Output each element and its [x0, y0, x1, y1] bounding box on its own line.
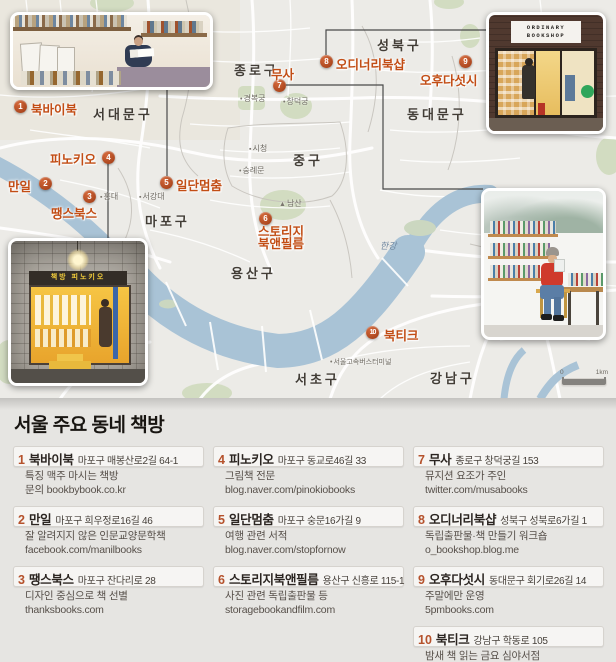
entry-address: 종로구 창덕궁길 153	[455, 452, 538, 467]
photo3-yellow-step	[49, 361, 91, 369]
photo1-shelf	[13, 27, 131, 31]
entry-description: 뮤지션 요조가 주인 twitter.com/musabooks	[425, 470, 604, 497]
legend-column-3: 7 무사 종로구 창덕궁길 153 뮤지션 요조가 주인 twitter.com…	[413, 446, 604, 662]
marker-label-manil: 만일	[8, 176, 31, 195]
legend-column-2: 4 피노키오 마포구 동교로46길 33 그림책 전문 blog.naver.c…	[213, 446, 404, 662]
entry-desc-line1: 뮤지션 요조가 주인	[425, 470, 604, 484]
entry-address: 마포구 동교로46길 33	[278, 452, 366, 467]
photo2-floor	[489, 118, 603, 131]
poi-namsan: ▲남산	[279, 198, 302, 209]
entry-number: 4	[218, 453, 225, 467]
photo4-shoe	[553, 315, 564, 321]
photo1-person-head	[134, 37, 143, 46]
entry-header: 2 만일 마포구 희우정로16길 46	[13, 506, 204, 527]
legend-entry: 1 북바이북 마포구 매봉산로2길 64-1 특징 맥주 마시는 책방 문의 b…	[13, 446, 204, 497]
entry-number: 9	[418, 573, 425, 587]
district-label-seocho: 서초구	[295, 369, 340, 388]
photo3-person	[99, 307, 112, 347]
marker-label-storage-line2: 북앤필름	[258, 238, 304, 250]
entry-name: 피노키오	[229, 449, 274, 468]
photo1-shelf-books-2	[143, 21, 203, 33]
photo4-books-row	[490, 265, 540, 278]
entry-number: 1	[18, 453, 25, 467]
poi-changdeokgung: •창덕궁	[283, 96, 309, 107]
entry-desc-line1: 주말에만 운영	[425, 590, 604, 604]
photo3-ground	[11, 369, 145, 383]
entry-desc-line2: thanksbooks.com	[25, 604, 204, 618]
entry-number: 8	[418, 513, 425, 527]
district-label-seodaemun: 서대문구	[93, 104, 153, 123]
entry-desc-line1: 잘 알려지지 않은 인문교양문학책	[25, 530, 204, 544]
legend-title: 서울 주요 동네 책방	[14, 410, 616, 437]
photo4-shelf	[488, 256, 552, 259]
entry-header: 10 북티크 강남구 학동로 105	[413, 626, 604, 647]
entry-header: 8 오디너리북샵 성북구 성북로6가길 1	[413, 506, 604, 527]
entry-name: 스토리지북앤필름	[229, 569, 319, 588]
entry-number: 5	[218, 513, 225, 527]
entry-address: 마포구 숭문16가길 9	[278, 512, 361, 527]
photo4-books-row	[490, 221, 556, 234]
scale-end: 1km	[596, 369, 608, 376]
photo3-blue-door-frame	[113, 287, 118, 359]
entry-number: 2	[18, 513, 25, 527]
legend-entry: 6 스토리지북앤필름 용산구 신흥로 115-1 사진 관련 독립출판물 등 s…	[213, 566, 404, 617]
entry-desc-line1: 여행 관련 서적	[225, 530, 404, 544]
photo2-person-head	[525, 58, 533, 66]
entry-header: 5 일단멈춤 마포구 숭문16가길 9	[213, 506, 404, 527]
photo2-green-circle-sticker	[581, 85, 594, 98]
legend-columns: 1 북바이북 마포구 매봉산로2길 64-1 특징 맥주 마시는 책방 문의 b…	[13, 446, 616, 662]
photo-pinocchio-storefront: 책방 피노키오	[8, 238, 148, 386]
infographic: 서대문구 종로구 성북구 동대문구 중구 마포구 용산구 서초구 강남구 •경복…	[0, 0, 616, 662]
entry-description: 주말에만 운영 5pmbooks.com	[425, 590, 604, 617]
marker-label-thanksbooks: 땡스북스	[51, 203, 97, 222]
entry-description: 디자인 중심으로 책 선별 thanksbooks.com	[25, 590, 204, 617]
entry-desc-line1: 독립출판물·책 만들기 워크숍	[425, 530, 604, 544]
photo2-red-object	[538, 103, 545, 115]
scale-bar: 0 1km	[560, 369, 608, 383]
entry-desc-line2: facebook.com/manilbooks	[25, 544, 204, 558]
legend-column-1: 1 북바이북 마포구 매봉산로2길 64-1 특징 맥주 마시는 책방 문의 b…	[13, 446, 204, 662]
photo4-book	[554, 259, 565, 272]
entry-name: 북바이북	[29, 449, 74, 468]
entry-name: 만일	[29, 509, 51, 528]
entry-name: 땡스북스	[29, 569, 74, 588]
marker-label-stopfornow: 일단멈춤	[176, 175, 222, 194]
entry-name: 북티크	[436, 629, 470, 648]
legend-entry: 3 땡스북스 마포구 잔다리로 28 디자인 중심으로 책 선별 thanksb…	[13, 566, 204, 617]
legend-section: 서울 주요 동네 책방 1 북바이북 마포구 매봉산로2길 64-1 특징 맥주…	[0, 398, 616, 662]
district-label-dongdaemun: 동대문구	[407, 104, 467, 123]
marker-label-ordinary-bookshop: 오디너리북샵	[336, 54, 405, 73]
entry-address: 마포구 잔다리로 28	[78, 572, 156, 587]
marker-label-bookbybook: 북바이북	[31, 99, 77, 118]
entry-desc-line2: 5pmbooks.com	[425, 604, 604, 618]
legend-entry: 9 오후다섯시 동대문구 회기로26길 14 주말에만 운영 5pmbooks.…	[413, 566, 604, 617]
scale-bar-line	[561, 378, 607, 386]
photo2-shop-sign: ORDINARY BOOKSHOP	[511, 21, 581, 43]
entry-name: 오디너리북샵	[429, 509, 496, 528]
marker-label-booktique: 북티크	[384, 325, 419, 344]
photo-musa-interior	[481, 188, 606, 340]
sign-line-2: BOOKSHOP	[511, 32, 581, 40]
marker-label-musa: 무사	[271, 64, 294, 83]
entry-desc-line2: blog.naver.com/stopfornow	[225, 544, 404, 558]
entry-description: 여행 관련 서적 blog.naver.com/stopfornow	[225, 530, 404, 557]
mountain-icon: ▲	[279, 201, 286, 208]
legend-entry: 8 오디너리북샵 성북구 성북로6가길 1 독립출판물·책 만들기 워크숍 o_…	[413, 506, 604, 557]
map-marker-4: 4	[102, 151, 115, 164]
map-marker-9: 9	[459, 55, 472, 68]
entry-address: 성북구 성북로6가길 1	[500, 512, 587, 527]
entry-header: 9 오후다섯시 동대문구 회기로26길 14	[413, 566, 604, 587]
entry-desc-line1: 사진 관련 독립출판물 등	[225, 590, 404, 604]
legend-entry: 4 피노키오 마포구 동교로46길 33 그림책 전문 blog.naver.c…	[213, 446, 404, 497]
photo4-books-row	[568, 273, 603, 286]
entry-number: 3	[18, 573, 25, 587]
entry-name: 무사	[429, 449, 451, 468]
entry-address: 마포구 희우정로16길 46	[55, 512, 152, 527]
photo3-person-head	[101, 299, 109, 307]
entry-name: 일단멈춤	[229, 509, 274, 528]
entry-description: 잘 알려지지 않은 인문교양문학책 facebook.com/manilbook…	[25, 530, 204, 557]
map-marker-3: 3	[83, 190, 96, 203]
photo1-shelf-books	[15, 15, 127, 27]
map-marker-5: 5	[160, 176, 173, 189]
poi-sungnyemun: •숭례문	[239, 165, 265, 176]
entry-description: 특징 맥주 마시는 책방 문의 bookbybook.co.kr	[25, 470, 204, 497]
photo4-books-row	[490, 243, 550, 256]
entry-address: 동대문구 회기로26길 14	[489, 572, 586, 587]
poi-gyeongbokgung: •경복궁	[240, 93, 266, 104]
photo2-display-item	[565, 75, 575, 101]
photo3-display-shelf	[35, 329, 91, 347]
photo2-person	[522, 65, 535, 99]
entry-address: 강남구 학동로 105	[474, 632, 548, 647]
entry-description: 독립출판물·책 만들기 워크숍 o_bookshop.blog.me	[425, 530, 604, 557]
poi-express-bus-terminal: •서울고속버스터미널	[330, 357, 391, 367]
photo3-display-cards	[35, 295, 91, 325]
connector-photo4-marker7	[284, 85, 483, 189]
photo4-person-leg	[544, 297, 551, 315]
photo3-light-bulb	[67, 249, 89, 271]
photo1-floor-books	[21, 71, 121, 85]
seoul-map: 서대문구 종로구 성북구 동대문구 중구 마포구 용산구 서초구 강남구 •경복…	[0, 0, 616, 399]
photo4-shelf	[488, 278, 544, 281]
marker-label-5pm: 오후다섯시	[420, 70, 478, 89]
entry-header: 1 북바이북 마포구 매봉산로2길 64-1	[13, 446, 204, 467]
entry-number: 7	[418, 453, 425, 467]
entry-desc-line2: storagebookandfilm.com	[225, 604, 404, 618]
sign-line-1: ORDINARY	[511, 24, 581, 32]
map-marker-6: 6	[259, 212, 272, 225]
entry-name: 오후다섯시	[429, 569, 485, 588]
poi-hongdae: ▪홍대	[100, 191, 118, 202]
district-label-seongbuk: 성북구	[377, 35, 422, 54]
entry-desc-line1: 밤새 책 읽는 금요 심야서점	[425, 650, 604, 662]
entry-header: 3 땡스북스 마포구 잔다리로 28	[13, 566, 204, 587]
photo3-yellow-step	[57, 354, 83, 361]
district-label-mapo: 마포구	[145, 211, 190, 230]
photo1-open-book	[130, 48, 154, 58]
scale-start: 0	[560, 369, 564, 376]
map-marker-10: 10	[366, 326, 379, 339]
entry-header: 6 스토리지북앤필름 용산구 신흥로 115-1	[213, 566, 404, 587]
photo4-shoe	[541, 314, 552, 320]
marker-label-storage: 스토리지 북앤필름	[258, 226, 304, 250]
photo4-bench-leg	[564, 292, 567, 318]
entry-desc-line1: 디자인 중심으로 책 선별	[25, 590, 204, 604]
marker-label-pinocchio: 피노키오	[50, 149, 96, 168]
photo1-shelf-2	[141, 33, 207, 37]
entry-desc-line1: 특징 맥주 마시는 책방	[25, 470, 204, 484]
legend-entry: 2 만일 마포구 희우정로16길 46 잘 알려지지 않은 인문교양문학책 fa…	[13, 506, 204, 557]
entry-number: 10	[418, 633, 432, 647]
photo4-person-leg	[554, 297, 561, 315]
photo4-floor	[484, 325, 603, 337]
entry-desc-line2: o_bookshop.blog.me	[425, 544, 604, 558]
photo-stopfornow-interior	[10, 12, 213, 90]
poi-hangang-label: 한강	[380, 239, 397, 252]
district-label-junggu: 중구	[293, 150, 323, 169]
entry-header: 4 피노키오 마포구 동교로46길 33	[213, 446, 404, 467]
entry-description: 밤새 책 읽는 금요 심야서점 booktique.kr	[425, 650, 604, 662]
legend-entry: 10 북티크 강남구 학동로 105 밤새 책 읽는 금요 심야서점 bookt…	[413, 626, 604, 662]
entry-desc-line2: 문의 bookbybook.co.kr	[25, 484, 204, 498]
photo3-shop-sign: 책방 피노키오	[29, 271, 127, 285]
photo-ordinary-bookshop-storefront: ORDINARY BOOKSHOP	[486, 12, 606, 134]
legend-entry: 5 일단멈춤 마포구 숭문16가길 9 여행 관련 서적 blog.naver.…	[213, 506, 404, 557]
map-marker-8: 8	[320, 55, 333, 68]
photo1-rug	[117, 67, 210, 87]
entry-address: 마포구 매봉산로2길 64-1	[78, 452, 178, 467]
map-marker-1: 1	[14, 100, 27, 113]
legend-entry: 7 무사 종로구 창덕궁길 153 뮤지션 요조가 주인 twitter.com…	[413, 446, 604, 497]
entry-desc-line2: twitter.com/musabooks	[425, 484, 604, 498]
district-label-yongsan: 용산구	[231, 263, 276, 282]
entry-header: 7 무사 종로구 창덕궁길 153	[413, 446, 604, 467]
poi-sogang-univ: ▪서강대	[139, 191, 165, 202]
poi-cityhall: ▪시청	[249, 143, 267, 154]
entry-desc-line1: 그림책 전문	[225, 470, 404, 484]
entry-desc-line2: blog.naver.com/pinokiobooks	[225, 484, 404, 498]
entry-address: 용산구 신흥로 115-1	[323, 572, 405, 587]
photo4-shelf	[488, 234, 558, 237]
entry-number: 6	[218, 573, 225, 587]
map-marker-2: 2	[39, 177, 52, 190]
entry-description: 그림책 전문 blog.naver.com/pinokiobooks	[225, 470, 404, 497]
district-label-gangnam: 강남구	[430, 368, 475, 387]
entry-description: 사진 관련 독립출판물 등 storagebookandfilm.com	[225, 590, 404, 617]
